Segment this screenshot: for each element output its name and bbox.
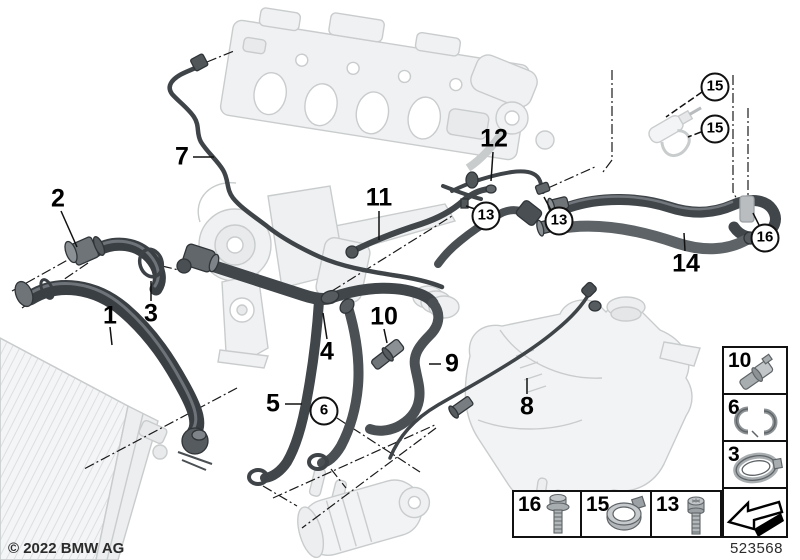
legend-box-3[interactable]: 3 (722, 440, 788, 489)
legend-box-10[interactable]: 10 (722, 346, 788, 395)
callout-12[interactable]: 12 (480, 127, 508, 152)
callout-13[interactable]: 13 (472, 202, 501, 231)
legend-box-16[interactable]: 16 (512, 490, 582, 538)
band-clamp-icon (724, 442, 786, 487)
hose-clamp-icon (602, 493, 648, 537)
callout-14[interactable]: 14 (672, 252, 700, 277)
callout-1[interactable]: 1 (103, 304, 117, 329)
callout-15[interactable]: 15 (701, 115, 730, 144)
callout-6[interactable]: 6 (310, 397, 339, 426)
callout-9[interactable]: 9 (445, 352, 459, 377)
callout-11[interactable]: 11 (366, 186, 392, 211)
legend-box-6[interactable]: 6 (722, 393, 788, 442)
callout-3[interactable]: 3 (144, 302, 158, 327)
parts-diagram: 123456789101112131314151516 10 6 3 (0, 0, 800, 560)
callout-2[interactable]: 2 (51, 187, 65, 212)
callout-13[interactable]: 13 (545, 207, 574, 236)
callout-8[interactable]: 8 (520, 395, 534, 420)
callout-4[interactable]: 4 (320, 340, 334, 365)
legend-box-13[interactable]: 13 (650, 490, 722, 538)
callout-16[interactable]: 16 (751, 224, 780, 253)
retaining-clip-icon (724, 395, 786, 440)
continuation-arrow-icon (724, 489, 786, 536)
legend-box-15[interactable]: 15 (580, 490, 652, 538)
flange-bolt-icon (538, 493, 578, 537)
callout-15[interactable]: 15 (701, 73, 730, 102)
hose-14-lower (557, 226, 746, 249)
legend-box-continuation[interactable] (722, 487, 788, 538)
socket-screw-icon (676, 493, 716, 537)
radiator (0, 338, 168, 560)
engine-mount-bracket (218, 274, 268, 368)
callout-10[interactable]: 10 (370, 305, 398, 330)
callout-5[interactable]: 5 (266, 392, 280, 417)
callout-7[interactable]: 7 (175, 145, 189, 170)
hose-5b (322, 307, 359, 463)
diagram-drawing (0, 0, 800, 560)
drawing-number: 523568 (0, 540, 783, 557)
quick-connect-coupling-icon (724, 348, 786, 393)
